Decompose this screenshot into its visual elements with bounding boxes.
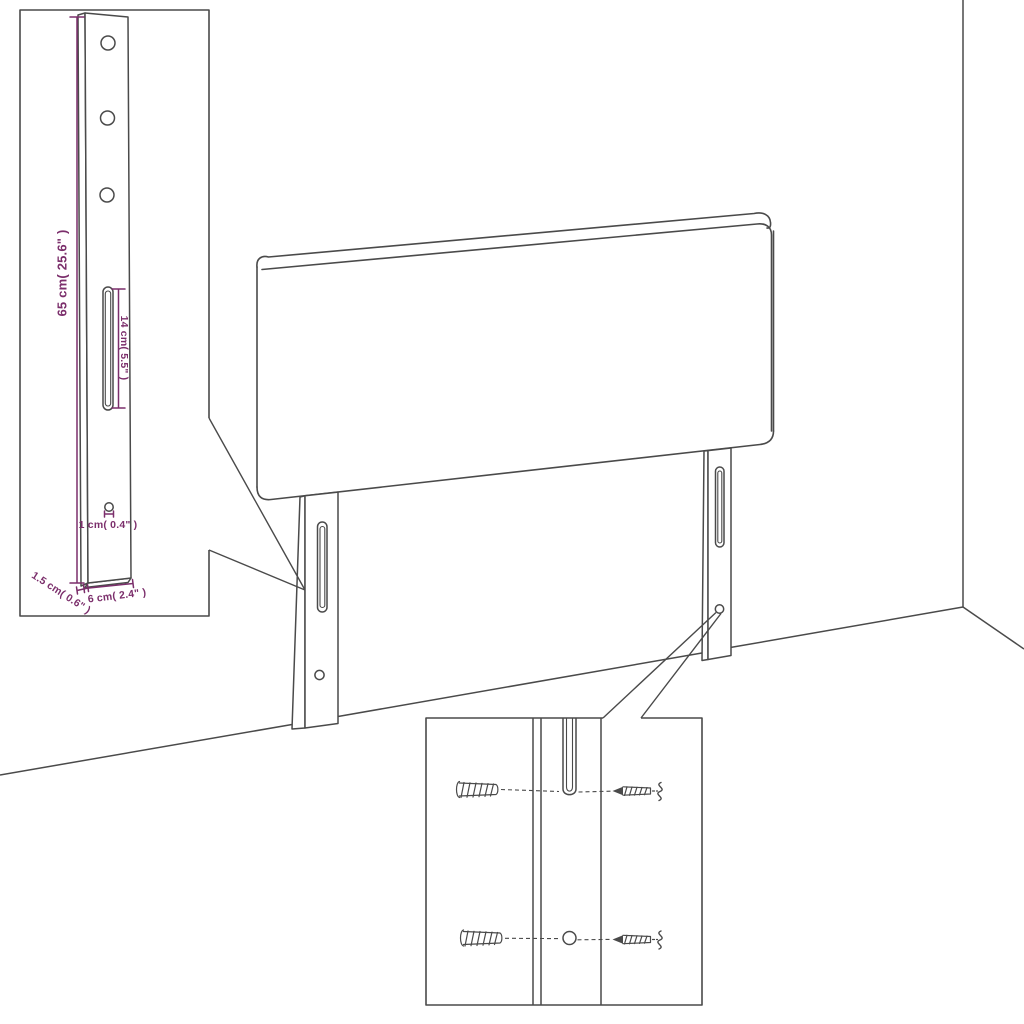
hardware-leader-lines (501, 790, 611, 940)
inset-leg-hole-2 (101, 111, 115, 125)
panel-fill (257, 214, 774, 500)
leg-left-hole (315, 670, 324, 679)
floor-line-left (0, 607, 963, 775)
leg-left-slot (318, 522, 328, 612)
diagram-canvas: 65 cm( 25.6" ) 14 cm( 5.5" ) 1 cm( 0.4" … (0, 0, 1024, 1024)
dimension-label-hole-diameter: 1 cm( 0.4" ) (79, 519, 138, 531)
leg-right-side-face (702, 451, 708, 661)
hardware-inset-box (426, 613, 721, 1006)
dimension-label-slot-length: 14 cm( 5.5" ) (118, 316, 130, 381)
inset-leg-small-hole (105, 503, 113, 511)
screw-leader-top (579, 791, 611, 792)
dimension-label-height: 65 cm( 25.6" ) (55, 229, 70, 316)
screw-icon (613, 783, 663, 801)
leg-right-slot (716, 467, 725, 547)
strip-hole (563, 932, 576, 945)
inset-leg-hole-1 (101, 36, 115, 50)
line-art (0, 0, 1024, 1024)
strip-slot-inner (567, 718, 573, 791)
floor-line-right (963, 607, 1024, 649)
plug-leader-top (501, 790, 559, 792)
headboard-panel (257, 213, 774, 500)
headboard-leg-right (702, 448, 731, 661)
wall-plug-icon (457, 782, 498, 798)
inset-leg-drawing (78, 13, 131, 588)
screw-icon (613, 931, 663, 949)
leg-right-hole (715, 605, 723, 613)
leg-left-side-face (292, 496, 305, 729)
inset-leg-slot (103, 287, 113, 410)
headboard-leg-left (292, 492, 338, 729)
wall-plug-icon (461, 930, 502, 946)
strip-slot (563, 718, 576, 795)
hardware-inset-leg-strip (533, 718, 601, 1005)
inset-leg-hole-3 (100, 188, 114, 202)
hardware-inset-border (426, 718, 702, 1005)
